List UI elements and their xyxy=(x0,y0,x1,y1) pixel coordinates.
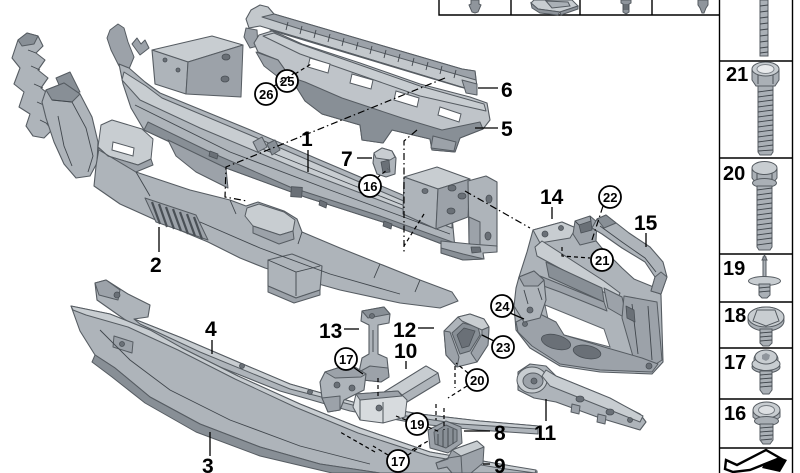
svg-text:18: 18 xyxy=(724,305,746,327)
svg-text:23: 23 xyxy=(496,340,510,355)
svg-text:2: 2 xyxy=(150,254,162,277)
svg-text:6: 6 xyxy=(501,79,513,102)
svg-text:17: 17 xyxy=(391,454,405,469)
svg-text:21: 21 xyxy=(595,253,609,268)
svg-text:7: 7 xyxy=(341,148,353,171)
svg-text:21: 21 xyxy=(726,64,748,86)
svg-text:11: 11 xyxy=(534,422,557,445)
svg-text:16: 16 xyxy=(724,403,746,425)
svg-text:9: 9 xyxy=(494,455,506,473)
svg-text:20: 20 xyxy=(723,163,745,185)
svg-text:17: 17 xyxy=(339,352,353,367)
svg-text:19: 19 xyxy=(723,258,745,280)
svg-text:13: 13 xyxy=(319,320,342,343)
svg-text:1: 1 xyxy=(301,128,313,151)
svg-text:26: 26 xyxy=(259,87,273,102)
svg-text:22: 22 xyxy=(603,190,617,205)
svg-text:17: 17 xyxy=(724,352,746,374)
svg-text:15: 15 xyxy=(634,212,658,235)
svg-text:4: 4 xyxy=(205,318,217,341)
svg-text:12: 12 xyxy=(393,319,416,342)
svg-text:20: 20 xyxy=(470,373,484,388)
svg-text:24: 24 xyxy=(495,299,510,314)
svg-text:14: 14 xyxy=(540,186,564,209)
svg-text:8: 8 xyxy=(494,422,506,445)
svg-text:3: 3 xyxy=(202,455,214,473)
svg-text:5: 5 xyxy=(501,118,513,141)
svg-text:19: 19 xyxy=(410,417,424,432)
svg-text:16: 16 xyxy=(363,179,377,194)
svg-text:10: 10 xyxy=(394,340,417,363)
